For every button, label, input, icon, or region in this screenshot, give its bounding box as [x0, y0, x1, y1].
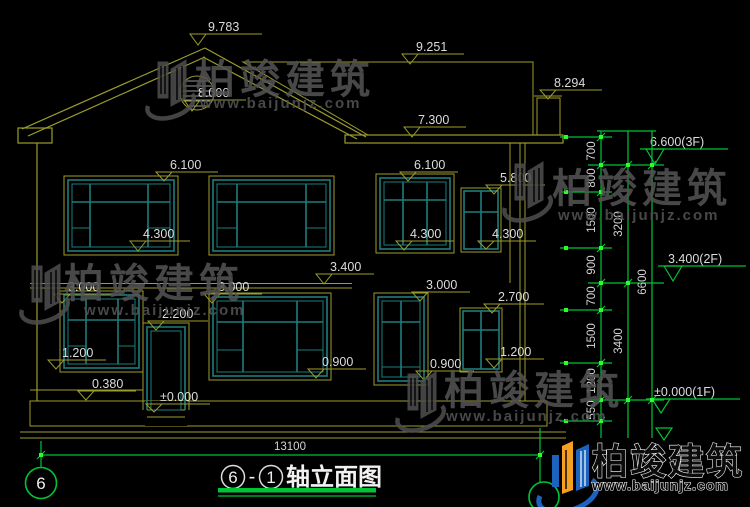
svg-text:13100: 13100 [274, 441, 306, 453]
logo-building-icon [552, 455, 559, 487]
ground-level-flag [656, 428, 672, 440]
logo-brand-text: 柏竣建筑 [592, 441, 744, 482]
watermark-url: www.baijunjz.com [445, 408, 607, 425]
window [461, 188, 501, 252]
svg-text:±0.000(1F): ±0.000(1F) [654, 385, 715, 399]
watermark-url: www.baijunjz.com [199, 95, 361, 112]
svg-text:9.783: 9.783 [208, 20, 239, 34]
floor-flag: ±0.000(1F) [646, 385, 740, 413]
watermark-brand: 柏竣建筑 [444, 369, 624, 413]
level-marker: 4.300 [396, 227, 454, 250]
drawing-title: 轴立面图 [286, 463, 382, 491]
watermark-url: www.baijunjz.com [83, 302, 245, 319]
level-marker: 1.200 [486, 345, 544, 368]
svg-text:6: 6 [228, 468, 237, 487]
level-marker: 0.900 [308, 355, 366, 378]
wing-roof-tiles [537, 98, 560, 135]
watermark-brand: 柏竣建筑 [552, 167, 732, 211]
level-marker: 3.400 [316, 260, 374, 284]
elevation-drawing: 9.783 8.000 9.251 7.300 8.294 6.100 6.10… [0, 0, 750, 507]
svg-text:3.000: 3.000 [426, 278, 457, 292]
svg-text:700: 700 [586, 141, 598, 160]
floor-flag: 6.600(3F) [640, 135, 728, 164]
svg-text:4.300: 4.300 [492, 227, 523, 241]
brand-logo-icon [21, 264, 67, 322]
title-block: 6 - 1 轴立面图 [218, 463, 382, 496]
floor-flag: 3.400(2F) [658, 252, 746, 281]
window [64, 176, 178, 255]
level-marker: 7.300 [404, 113, 466, 137]
level-marker: 9.251 [402, 40, 464, 64]
title-underline [218, 488, 376, 493]
level-marker: 1.200 [48, 346, 106, 369]
svg-text:8.294: 8.294 [554, 76, 585, 90]
svg-text:4.300: 4.300 [410, 227, 441, 241]
svg-text:0.900: 0.900 [322, 355, 353, 369]
cad-elevation-viewport: 9.783 8.000 9.251 7.300 8.294 6.100 6.10… [0, 0, 750, 507]
svg-text:6.600(3F): 6.600(3F) [650, 135, 704, 149]
svg-text:6.100: 6.100 [170, 158, 201, 172]
svg-text:6.100: 6.100 [414, 158, 445, 172]
svg-text:1.200: 1.200 [62, 346, 93, 360]
watermark-url: www.baijunjz.com [557, 207, 719, 224]
svg-text:-: - [249, 466, 256, 488]
level-marker: 2.700 [484, 290, 544, 313]
window [460, 308, 502, 372]
svg-text:900: 900 [586, 255, 598, 274]
watermarks: 柏竣建筑 www.baijunjz.com 柏竣建筑 www.baijunjz.… [21, 58, 732, 430]
svg-text:3.400(2F): 3.400(2F) [668, 252, 722, 266]
svg-text:3400: 3400 [613, 328, 625, 354]
logo-url-text: www.baijunjz.com [591, 477, 729, 493]
eave-band [345, 135, 563, 143]
svg-text:700: 700 [586, 286, 598, 305]
level-marker: 4.300 [478, 227, 536, 249]
svg-text:1500: 1500 [586, 323, 598, 349]
svg-text:7.300: 7.300 [418, 113, 449, 127]
watermark-brand: 柏竣建筑 [64, 262, 244, 306]
svg-text:9.251: 9.251 [416, 40, 447, 54]
grid-bubble-left-label: 6 [36, 474, 45, 493]
level-marker: 9.783 [190, 20, 262, 45]
svg-text:0.380: 0.380 [92, 377, 123, 391]
svg-text:±0.000: ±0.000 [160, 390, 198, 404]
svg-text:2.700: 2.700 [498, 290, 529, 304]
svg-text:1: 1 [266, 468, 275, 487]
window [209, 176, 334, 255]
svg-text:4.300: 4.300 [143, 227, 174, 241]
level-marker: 0.380 [78, 377, 136, 400]
svg-text:6600: 6600 [637, 269, 649, 295]
company-logo: 柏竣建筑 www.baijunjz.com [539, 441, 744, 507]
svg-text:3.400: 3.400 [330, 260, 361, 274]
brand-logo-icon [147, 60, 193, 118]
svg-text:1.200: 1.200 [500, 345, 531, 359]
